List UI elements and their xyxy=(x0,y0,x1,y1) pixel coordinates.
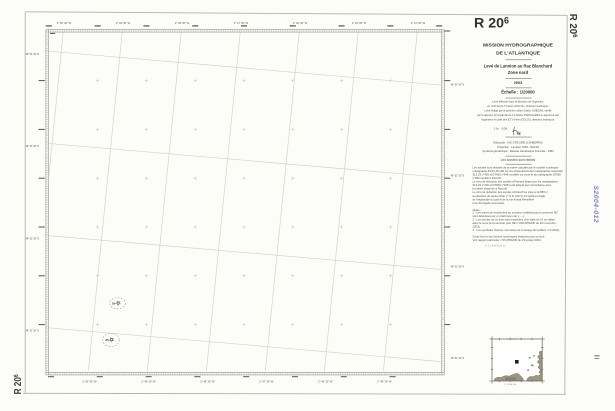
svg-text:J le : 3.06: J le : 3.06 xyxy=(494,126,508,130)
svg-text:dans le sens de la sécurité (v: dans le sens de la sécurité (voir NE n°2… xyxy=(473,221,557,225)
svg-text:Levé de Lannion au Raz Blancha: Levé de Lannion au Raz Blanchard xyxy=(484,64,553,69)
svg-text:Les sondes sont réelles: Les sondes sont réelles xyxy=(501,158,536,162)
svg-text:2° 46' 30" W: 2° 46' 30" W xyxy=(293,21,308,25)
svg-text:2° 47' 30" W: 2° 47' 30" W xyxy=(234,21,249,25)
svg-text:Voir rapport particulier n°29: Voir rapport particulier n°29 MHA/NP du … xyxy=(473,238,542,242)
svg-text:sont délimitées par un trait t: sont délimitées par un trait tireté noir… xyxy=(473,214,525,218)
svg-text:2003).: 2003). xyxy=(473,225,481,229)
svg-text:la marée observée à Roscoff.: la marée observée à Roscoff. xyxy=(473,187,508,191)
svg-text:48° 51' 30" N: 48° 51' 30" N xyxy=(26,331,40,333)
svg-text:2° 48' 30" W: 2° 48' 30" W xyxy=(200,380,215,384)
svg-text:Levé rédigé par le premier maî: Levé rédigé par le premier maître Cédric… xyxy=(485,109,552,113)
svg-text:3 - Les symboles d'épave sont: 3 - Les symboles d'épave sont issus de l… xyxy=(473,228,561,232)
svg-text:1 : 1 000 000: 1 : 1 000 000 xyxy=(504,384,518,386)
svg-text:Les sondes sont réduites de la: Les sondes sont réduites de la marée cal… xyxy=(473,165,559,169)
svg-text:48° 54' 30" N: 48° 54' 30" N xyxy=(451,84,465,86)
svg-text:48° 52' 30" N: 48° 52' 30" N xyxy=(26,238,40,240)
svg-text:29: 29 xyxy=(112,301,116,305)
svg-text:R 206: R 206 xyxy=(474,15,509,31)
svg-text:(mur de façade sud-ouest).: (mur de façade sud-ouest). xyxy=(473,201,506,205)
svg-text:2° 44' 30" W: 2° 44' 30" W xyxy=(411,21,426,25)
svg-text:48° 53' 30" N: 48° 53' 30" N xyxy=(26,146,40,148)
svg-text:2° 45' 30" W: 2° 45' 30" W xyxy=(377,380,392,384)
svg-text:au-dessous du repère NGF n° N.: au-dessous du repère NGF n° N.R. KDYO-13… xyxy=(473,194,546,198)
svg-text:Système géodésique : Réseau Gé: Système géodésique : Réseau Géodésique F… xyxy=(482,149,554,153)
svg-text:48° 54' 30" N: 48° 54' 30" N xyxy=(26,54,40,56)
svg-text:2 - Les sondes de ce levé sont: 2 - Les sondes de ce levé sont entachées… xyxy=(473,218,556,222)
svg-text:Échelle : 1/20000: Échelle : 1/20000 xyxy=(501,90,535,95)
svg-text:SL3 23 n°426 et DT660 n°948 mo: SL3 23 n°426 et DT660 n°948 mouillés sur… xyxy=(473,172,562,176)
svg-text:Seuls font foi les fichiers nu: Seuls font foi les fichiers numériques é… xyxy=(473,234,546,238)
svg-text:48° 52' 30" N: 48° 52' 30" N xyxy=(451,266,465,268)
svg-text:en chef des E.T.A Henri DOLOU,: en chef des E.T.A Henri DOLOU, directeur… xyxy=(487,104,549,108)
svg-text:S2004-012: S2004-012 xyxy=(592,186,599,224)
svg-text:DE L'ATLANTIQUE: DE L'ATLANTIQUE xyxy=(496,50,541,56)
svg-text:2° 50' 30" W: 2° 50' 30" W xyxy=(82,380,97,384)
svg-text:Le zéro de réduction des sonde: Le zéro de réduction des sondes à Roscof… xyxy=(473,190,549,194)
svg-text:2003: 2003 xyxy=(514,81,522,85)
svg-text:R 206: R 206 xyxy=(12,374,23,394)
svg-text:28: 28 xyxy=(105,338,109,342)
svg-text:5.1 1e40Ccd ar: 5.1 1e40Ccd ar xyxy=(485,243,506,247)
svg-text:Levé effectué sous la directio: Levé effectué sous la direction de l'ing… xyxy=(492,100,543,104)
svg-text:48° 51' 30" N: 48° 51' 30" N xyxy=(451,358,465,360)
svg-text:48° 53' 30" N: 48° 53' 30" N xyxy=(451,175,465,177)
svg-text:de l'esplanade du port et de l: de l'esplanade du port et de la rue Amir… xyxy=(473,197,535,201)
svg-text:2° 45' 30" W: 2° 45' 30" W xyxy=(352,21,367,25)
svg-text:2° 46' 30" W: 2° 46' 30" W xyxy=(318,380,333,384)
svg-text:MISSION HYDROGRAPHIQUE: MISSION HYDROGRAPHIQUE xyxy=(483,42,554,48)
svg-text:Ellipsoïde : IAG GRS 1980 (CAN: Ellipsoïde : IAG GRS 1980 (CANBERRA) xyxy=(493,140,542,144)
svg-text:2° 48' 30" W: 2° 48' 30" W xyxy=(175,21,190,25)
svg-text:2° 50' 30" W: 2° 50' 30" W xyxy=(57,21,72,25)
svg-text:SL3 23 n°426 et DT660 n°948 a: SL3 23 n°426 et DT660 n°948 a été adopté… xyxy=(473,183,552,187)
svg-text:1 - Les zones de recherches au: 1 - Les zones de recherches au sondeur m… xyxy=(473,211,559,215)
svg-text:n°950 mouillé à Roscoff.: n°950 mouillé à Roscoff. xyxy=(473,176,502,180)
svg-text:par l'ingénieur principal des: par l'ingénieur principal des E.T.A Oliv… xyxy=(477,113,559,117)
svg-text:2° 49' 30" W: 2° 49' 30" W xyxy=(141,380,156,384)
svg-text:l'ingénieur en chef des E.T.A: l'ingénieur en chef des E.T.A Henri DOLO… xyxy=(481,117,555,121)
svg-text:marégraphe 03-03-18 calé sur l: marégraphe 03-03-18 calé sur les observa… xyxy=(473,169,564,173)
svg-text:Projection : Lambert 1993 - RG: Projection : Lambert 1993 - RGF93 xyxy=(497,145,539,149)
svg-text:Le zéro de réduction des sonde: Le zéro de réduction des sondes à Paimpo… xyxy=(473,180,559,184)
svg-text:2° 47' 30" W: 2° 47' 30" W xyxy=(259,380,274,384)
svg-text:Zone nord: Zone nord xyxy=(508,70,529,75)
svg-text:2° 49' 30" W: 2° 49' 30" W xyxy=(116,21,131,25)
